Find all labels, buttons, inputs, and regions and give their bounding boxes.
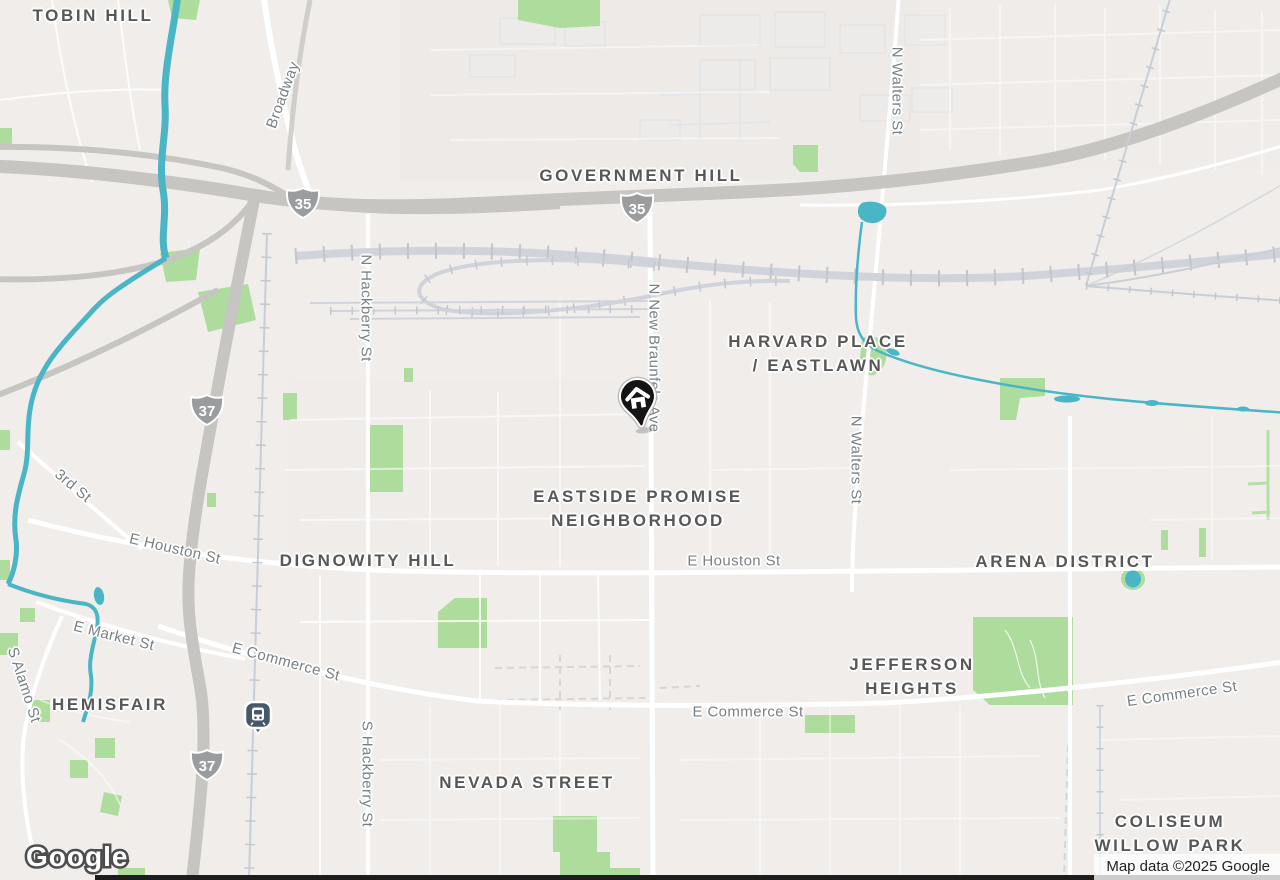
map-canvas[interactable]: TOBIN HILLGOVERNMENT HILLHARVARD PLACE/ … (0, 0, 1280, 880)
highway-shield-35-east: 35 (619, 191, 655, 225)
highway-shield-37-south: 37 (189, 748, 225, 782)
google-logo[interactable]: Google (24, 838, 154, 878)
google-logo-text: Google (26, 841, 128, 872)
highway-shield-35-west: 35 (285, 186, 321, 220)
map-attribution: Map data ©2025 Google (1094, 854, 1280, 880)
highway-shield-37-north: 37 (189, 393, 225, 427)
shield-number: 37 (199, 403, 216, 420)
shield-number: 37 (199, 758, 216, 775)
shield-number: 35 (295, 196, 312, 213)
shield-number: 35 (629, 201, 646, 218)
